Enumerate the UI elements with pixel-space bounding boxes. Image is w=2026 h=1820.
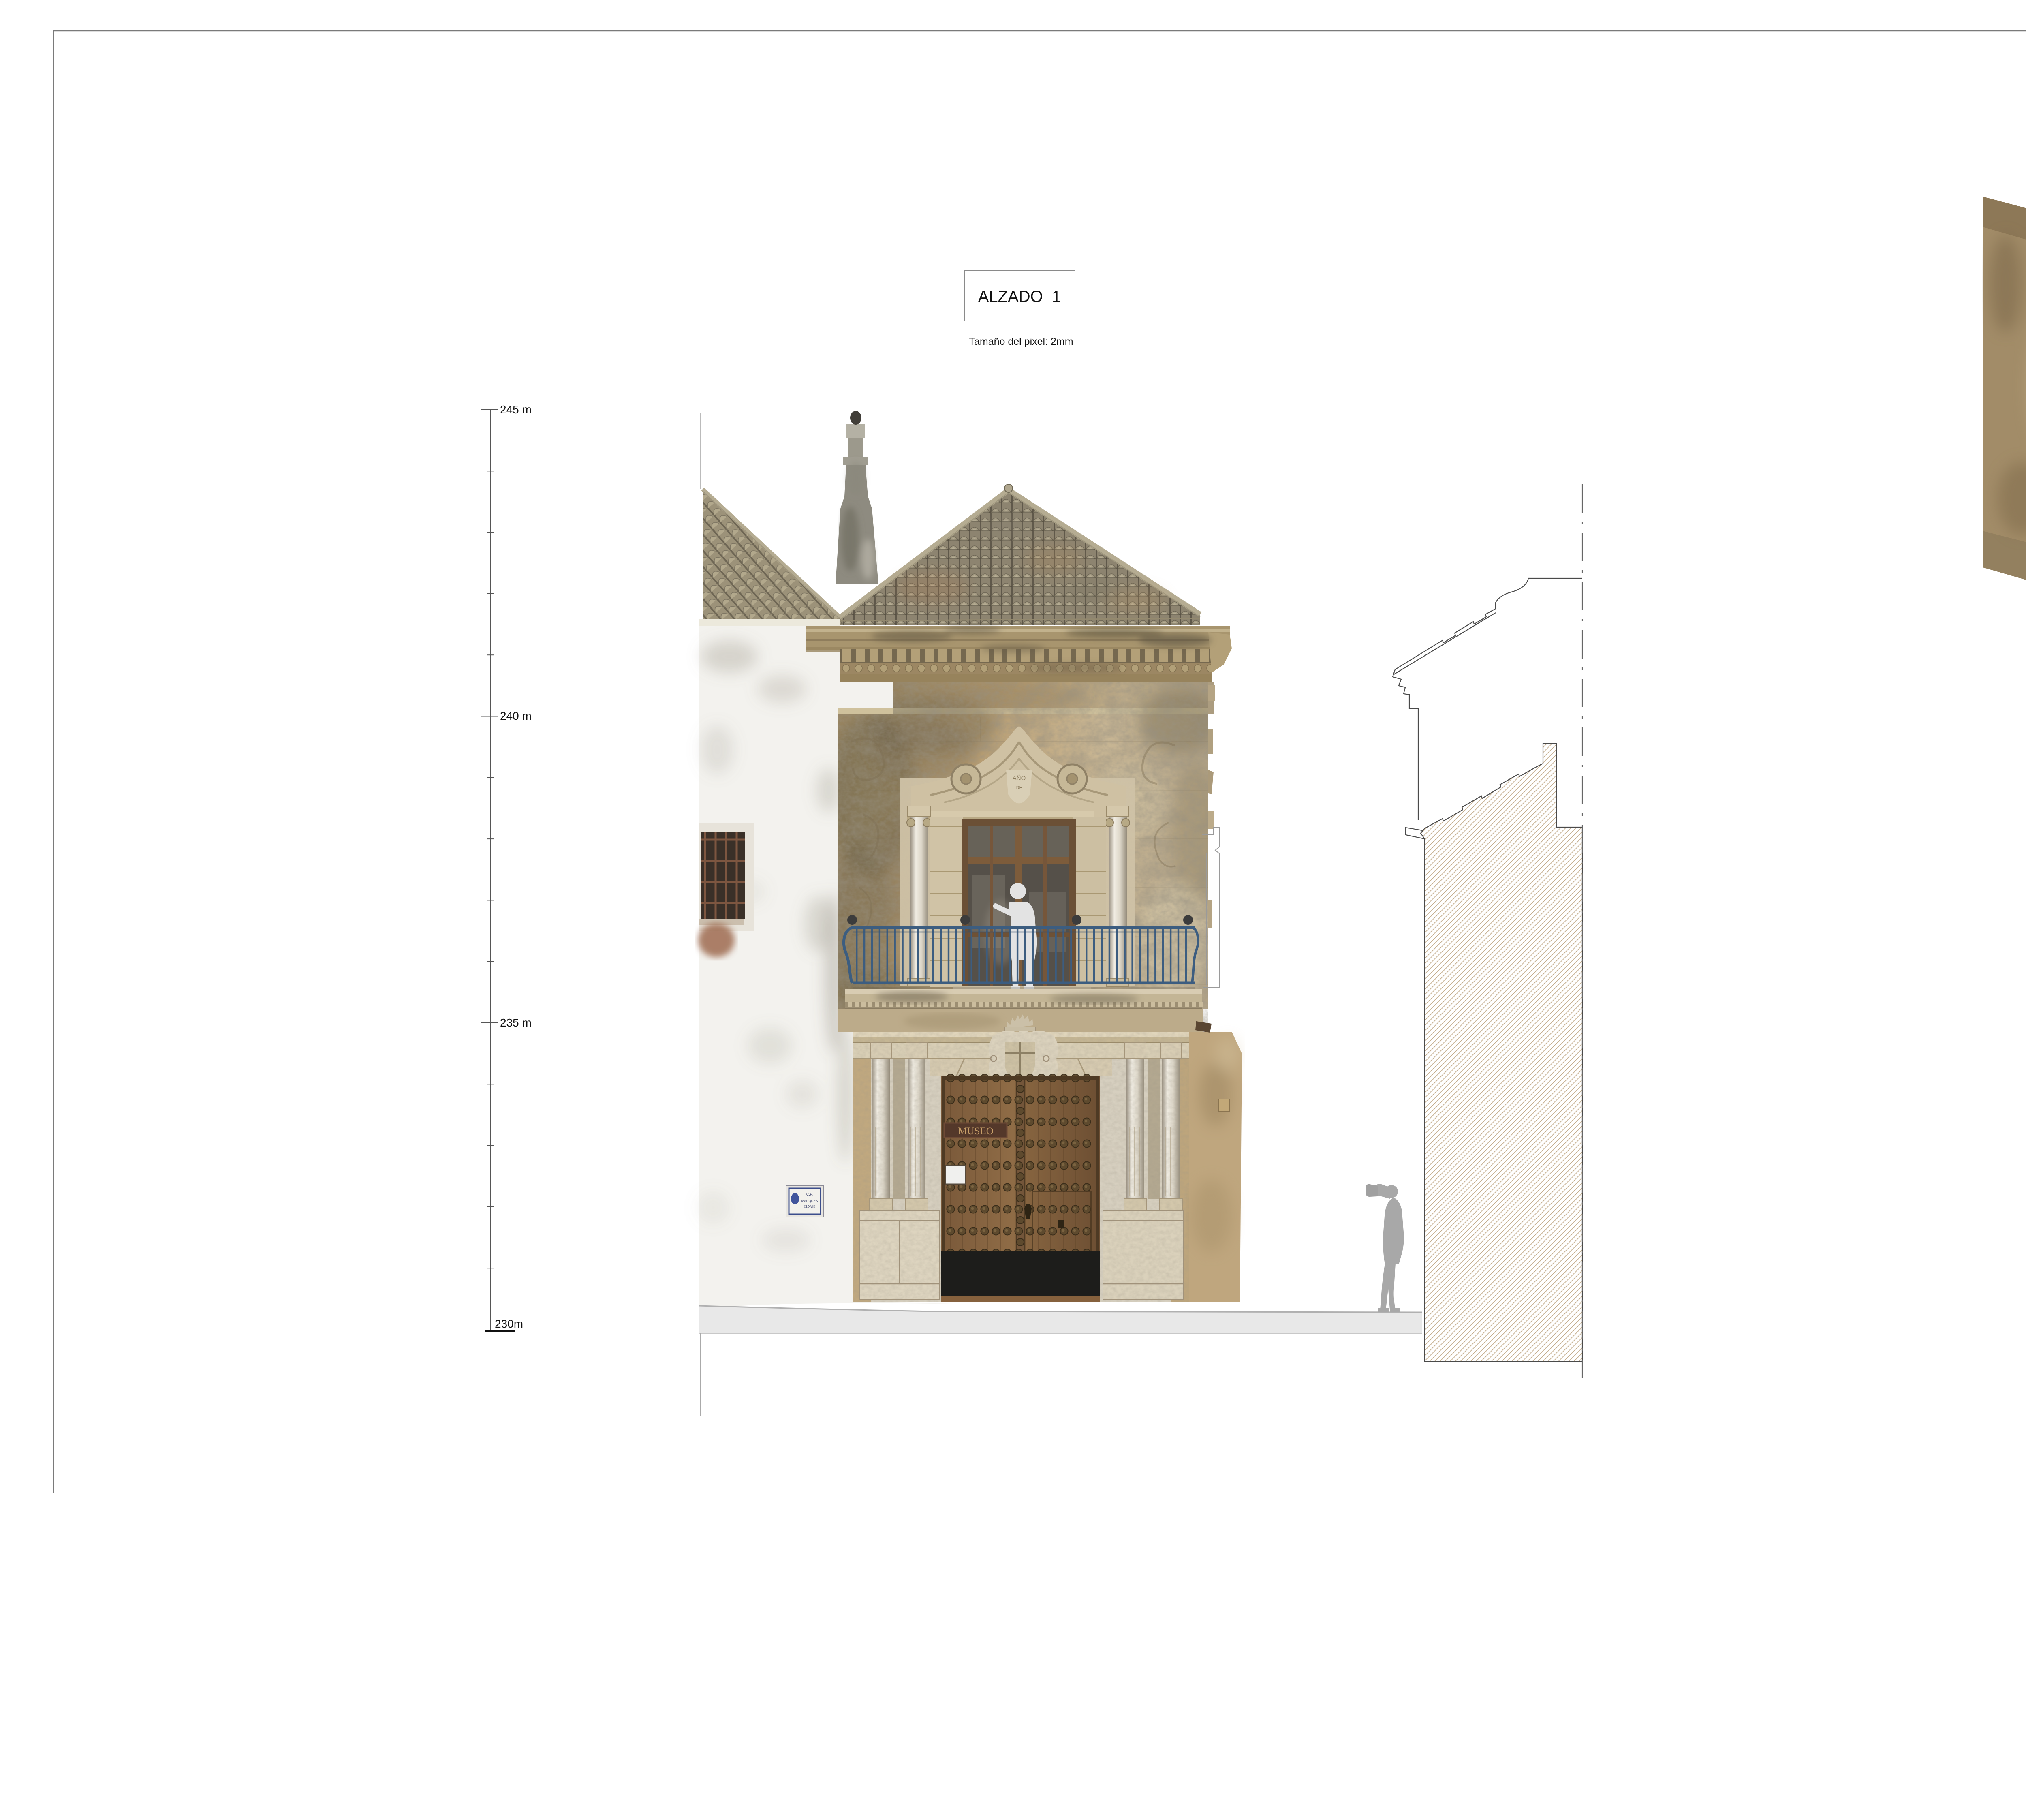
- svg-text:Fase 1.: Fase 1.: [941, 1538, 973, 1549]
- svg-text:240 m: 240 m: [500, 710, 532, 722]
- svg-text:MARQUES: MARQUES: [801, 1199, 818, 1203]
- svg-text:(S.XVII): (S.XVII): [804, 1205, 815, 1208]
- svg-text:Y ARQUEOLÓGICOS: Y ARQUEOLÓGICOS: [2019, 1665, 2026, 1676]
- svg-text:Grietas.: Grietas.: [1034, 1574, 1066, 1584]
- svg-text:Tamaño del pixel: 2mm: Tamaño del pixel: 2mm: [969, 336, 1073, 347]
- svg-text:amr @levantamientos.com: amr @levantamientos.com: [2011, 1756, 2026, 1766]
- svg-text:235 m: 235 m: [500, 1016, 532, 1029]
- svg-text:230m: 230m: [495, 1317, 523, 1330]
- svg-text:AÑO: AÑO: [1013, 775, 1026, 782]
- svg-text:DE: DE: [1015, 785, 1023, 791]
- svg-text:Tf: + 34 609 53 51 79: Tf: + 34 609 53 51 79: [2024, 1744, 2026, 1754]
- svg-text:Fase 2.: Fase 2.: [941, 1574, 973, 1585]
- svg-text:ARQUITECTÓNICOS: ARQUITECTÓNICOS: [2019, 1652, 2026, 1663]
- svg-text:C.P.: C.P.: [806, 1192, 813, 1196]
- svg-text:ALZADO 1: ALZADO 1: [978, 288, 1061, 306]
- svg-text:245 m: 245 m: [500, 403, 532, 416]
- svg-text:LEYENDA: LEYENDA: [960, 1490, 1022, 1505]
- svg-text:M: M: [2013, 1586, 2026, 1633]
- svg-text:Edificios anexos.: Edificios anexos.: [1037, 1538, 1104, 1548]
- svg-text:MUSEO: MUSEO: [958, 1126, 994, 1137]
- svg-text:LEVANTAMIENTOS: LEVANTAMIENTOS: [2019, 1637, 2026, 1649]
